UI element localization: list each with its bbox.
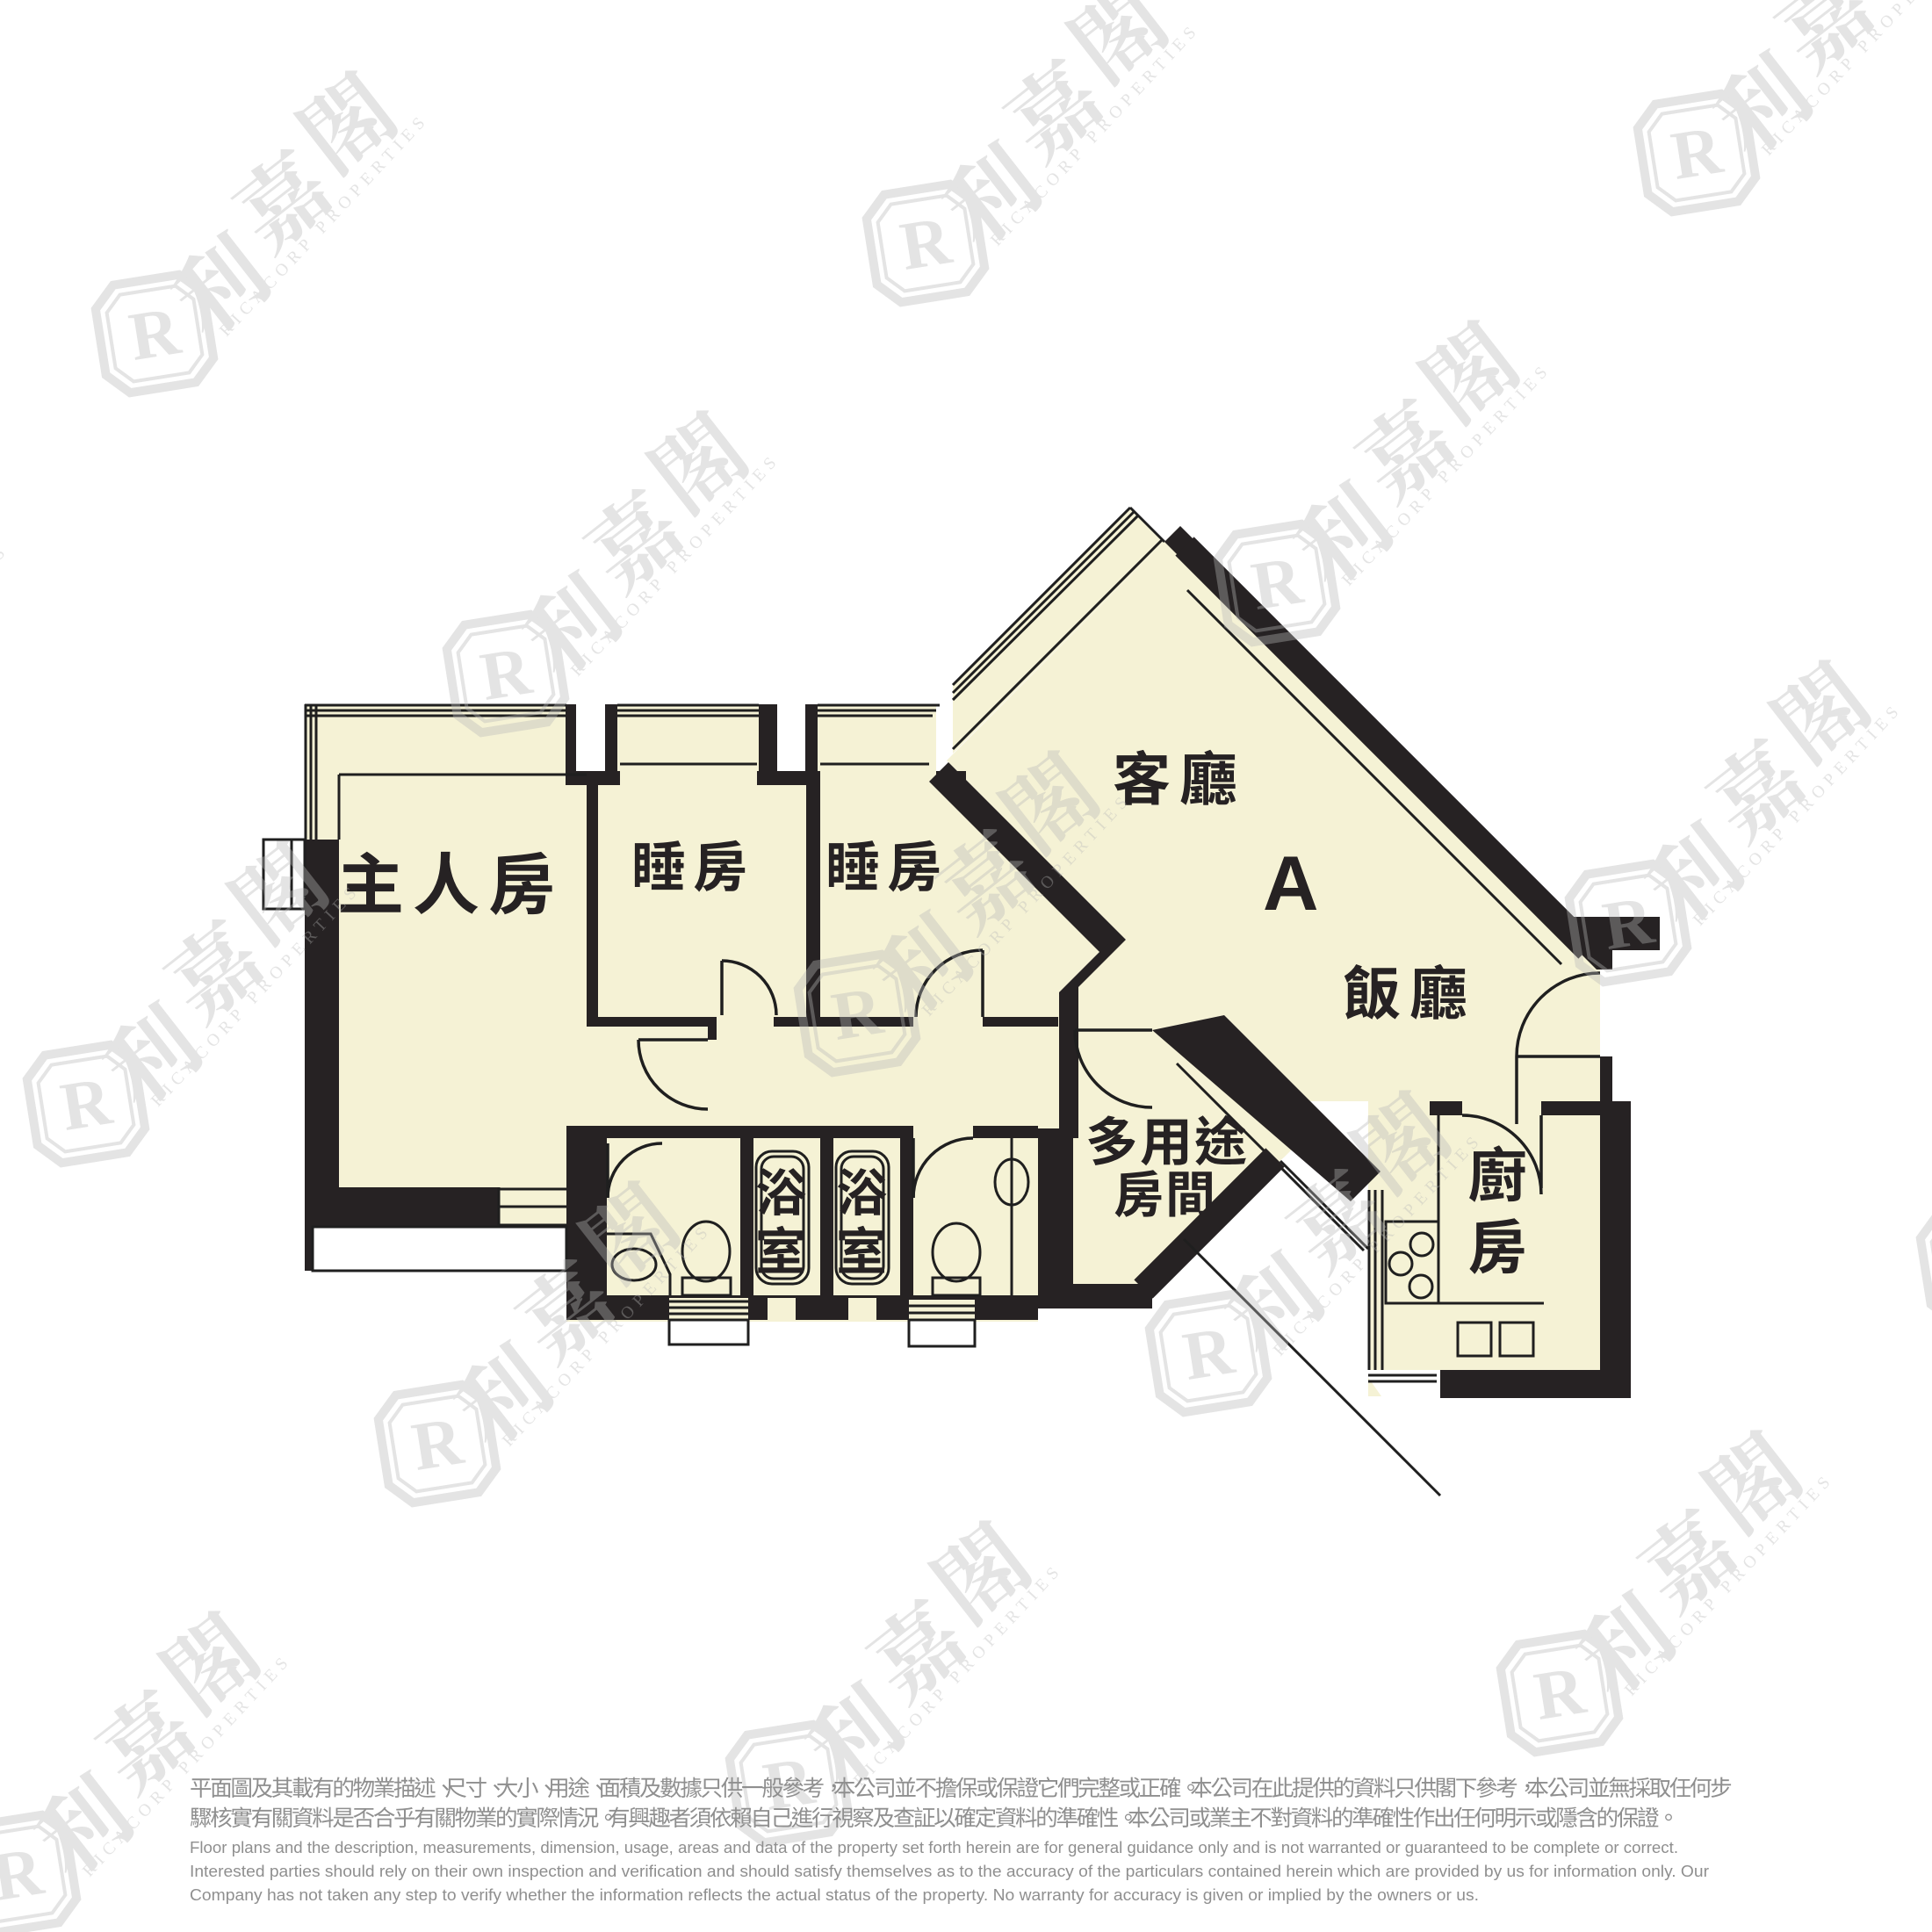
svg-text:Company has not taken any step: Company has not taken any step to verify… xyxy=(190,1885,1479,1904)
svg-text:Floor plans and the descriptio: Floor plans and the description, measure… xyxy=(190,1838,1678,1856)
svg-text:Interested parties should rely: Interested parties should rely on their … xyxy=(190,1862,1709,1880)
